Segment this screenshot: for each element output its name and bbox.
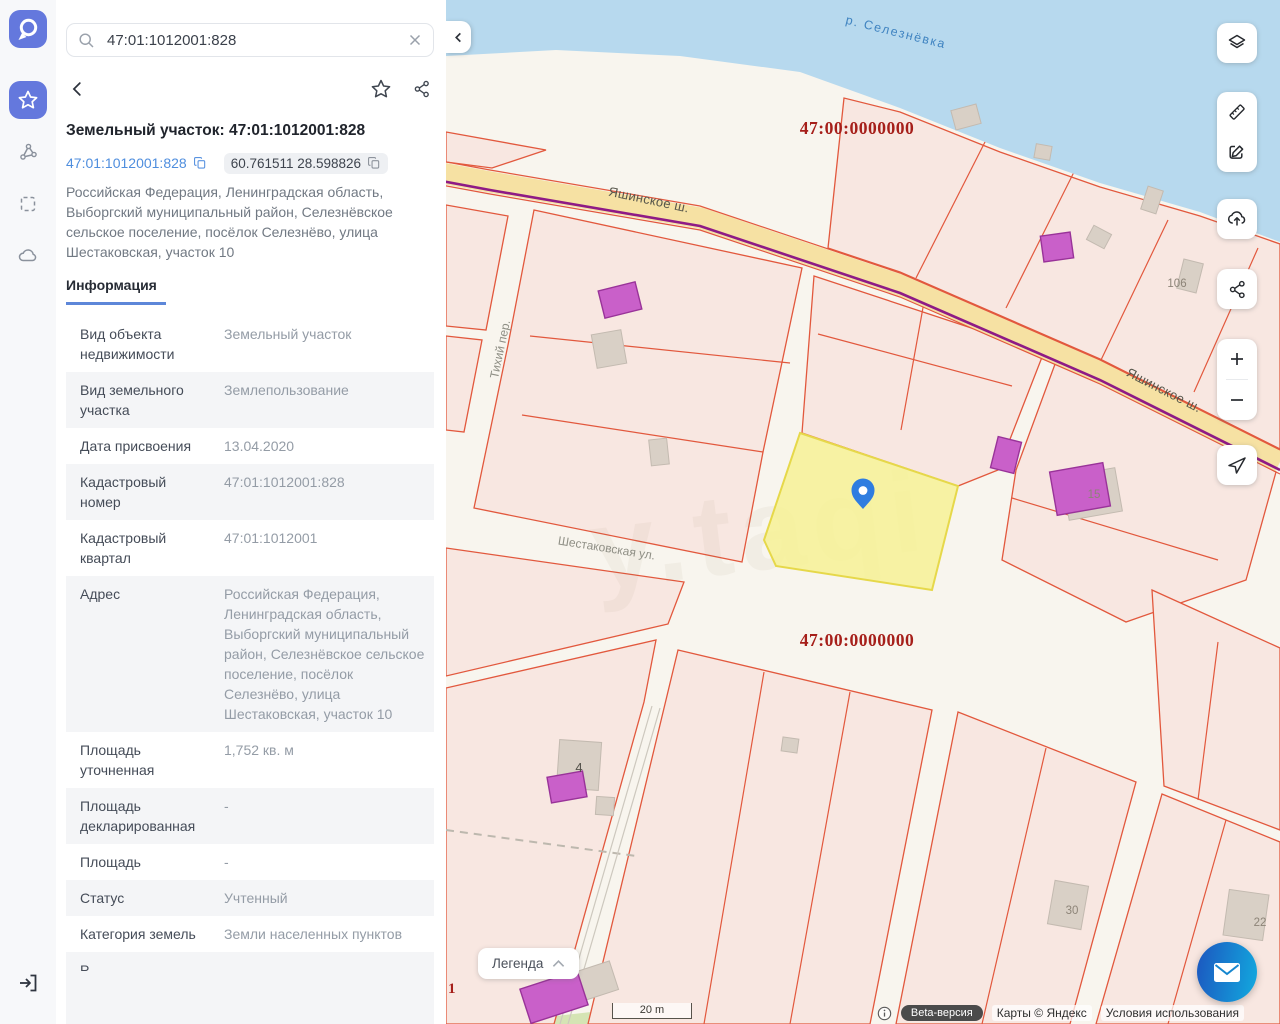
share-object-button[interactable] [410,77,434,101]
info-table: Вид объекта недвижимости Земельный участ… [66,316,434,1024]
cloud-icon [16,244,40,268]
measure-edit-control [1217,92,1257,172]
house-number: 106 [1167,278,1186,290]
collapse-sidebar-button[interactable] [446,21,471,53]
search-bar [66,23,434,57]
map-attribution: Beta-версия Карты © Яндекс Условия испол… [877,1005,1244,1021]
locate-button[interactable] [1217,445,1257,485]
share-control[interactable] [1217,269,1257,309]
clear-search-icon[interactable] [407,32,423,48]
star-icon [17,89,39,111]
back-button[interactable] [66,77,90,101]
map-copyright[interactable]: Карты © Яндекс [992,1005,1092,1021]
info-icon[interactable] [877,1006,892,1021]
login-button[interactable] [9,964,47,1002]
select-area-button[interactable] [9,185,47,223]
object-actions-row [66,77,434,101]
table-row: Площадь - [66,844,434,880]
table-row: Категория земель Земли населенных пункто… [66,916,434,952]
layers-control[interactable] [1217,23,1257,63]
vector-polygon-icon [17,141,39,163]
select-area-icon [17,193,39,215]
page-title: Земельный участок: 47:01:1012001:828 [66,122,434,140]
house-number: 30 [1066,905,1079,917]
plus-icon [1228,350,1246,368]
star-outline-icon [370,78,392,100]
scale-value: 20 m [640,1004,664,1016]
upload-control[interactable] [1217,199,1257,239]
chat-button[interactable] [1197,942,1257,1002]
ruler-icon [1226,101,1248,123]
search-input[interactable] [105,31,398,50]
locate-control[interactable] [1217,445,1257,485]
layers-button[interactable] [1217,23,1257,63]
edit-button[interactable] [1217,132,1257,172]
app-rail [0,0,56,1024]
object-address: Российская Федерация, Ленинградская обла… [66,182,434,262]
zoom-control [1217,339,1257,420]
coordinates-value: 60.761511 28.598826 [231,156,361,171]
table-row: Площадь декларированная - [66,788,434,844]
table-row: Статус Учтенный [66,880,434,916]
table-row: Кадастровый номер 47:01:1012001:828 [66,464,434,520]
cloud-upload-icon [1225,207,1249,231]
navigation-arrow-icon [1226,454,1248,476]
share-map-button[interactable] [1217,269,1257,309]
table-row: Вид земельного участка Землепользование [66,372,434,428]
house-number: 15 [1088,489,1101,501]
legend-label: Легенда [492,956,543,971]
envelope-icon [1213,962,1241,983]
vector-polygon-button[interactable] [9,133,47,171]
legend-button[interactable]: Легенда [478,948,579,979]
favorites-button[interactable] [9,81,47,119]
copy-icon[interactable] [193,156,207,170]
app-logo[interactable] [9,10,47,48]
share-icon [412,79,432,99]
table-row-partial: Р [66,952,434,1024]
terms-link[interactable]: Условия использования [1101,1005,1244,1021]
cadastral-number-chip[interactable]: 47:01:1012001:828 [66,152,214,174]
share-icon [1227,279,1248,300]
object-chips: 47:01:1012001:828 60.761511 28.598826 [66,152,434,174]
cloud-button[interactable] [9,237,47,275]
cloud-upload-button[interactable] [1217,199,1257,239]
cadastral-number-link[interactable]: 47:01:1012001:828 [66,155,187,171]
back-chevron-icon [68,79,88,99]
chevron-up-icon [552,959,565,968]
info-sidebar: Земельный участок: 47:01:1012001:828 47:… [56,0,446,1024]
map-canvas[interactable]: y.taqi [446,0,1280,1024]
ruler-button[interactable] [1217,92,1257,132]
table-row: Кадастровый квартал 47:01:1012001 [66,520,434,576]
scale-bar: 20 m [612,1003,692,1019]
favorite-object-button[interactable] [369,77,393,101]
copy-icon[interactable] [367,156,381,170]
table-row: Адрес Российская Федерация, Ленинградска… [66,576,434,732]
layers-icon [1226,32,1248,54]
search-icon [77,31,96,50]
zoom-in-button[interactable] [1217,339,1257,379]
tab-information[interactable]: Информация [66,277,166,305]
house-number: 22 [1254,917,1267,929]
table-row: Дата присвоения 13.04.2020 [66,428,434,464]
coordinates-chip[interactable]: 60.761511 28.598826 [224,153,388,174]
app-logo-icon [13,14,43,44]
map-area[interactable]: y.taqi [446,0,1280,1024]
zoom-out-button[interactable] [1217,380,1257,420]
table-row: Вид объекта недвижимости Земельный участ… [66,316,434,372]
cadastral-quarter-label: 47:00:0000000 [800,118,914,138]
house-number: 4 [575,760,582,775]
cadastral-quarter-label: 47:00:0000000 [800,630,914,650]
edit-icon [1226,141,1248,163]
table-row: Площадь уточненная 1,752 кв. м [66,732,434,788]
minus-icon [1228,391,1246,409]
login-icon [16,971,40,995]
partial-quarter-label: 1 [448,981,456,997]
chevron-left-icon [453,32,464,43]
beta-badge: Beta-версия [901,1005,983,1021]
